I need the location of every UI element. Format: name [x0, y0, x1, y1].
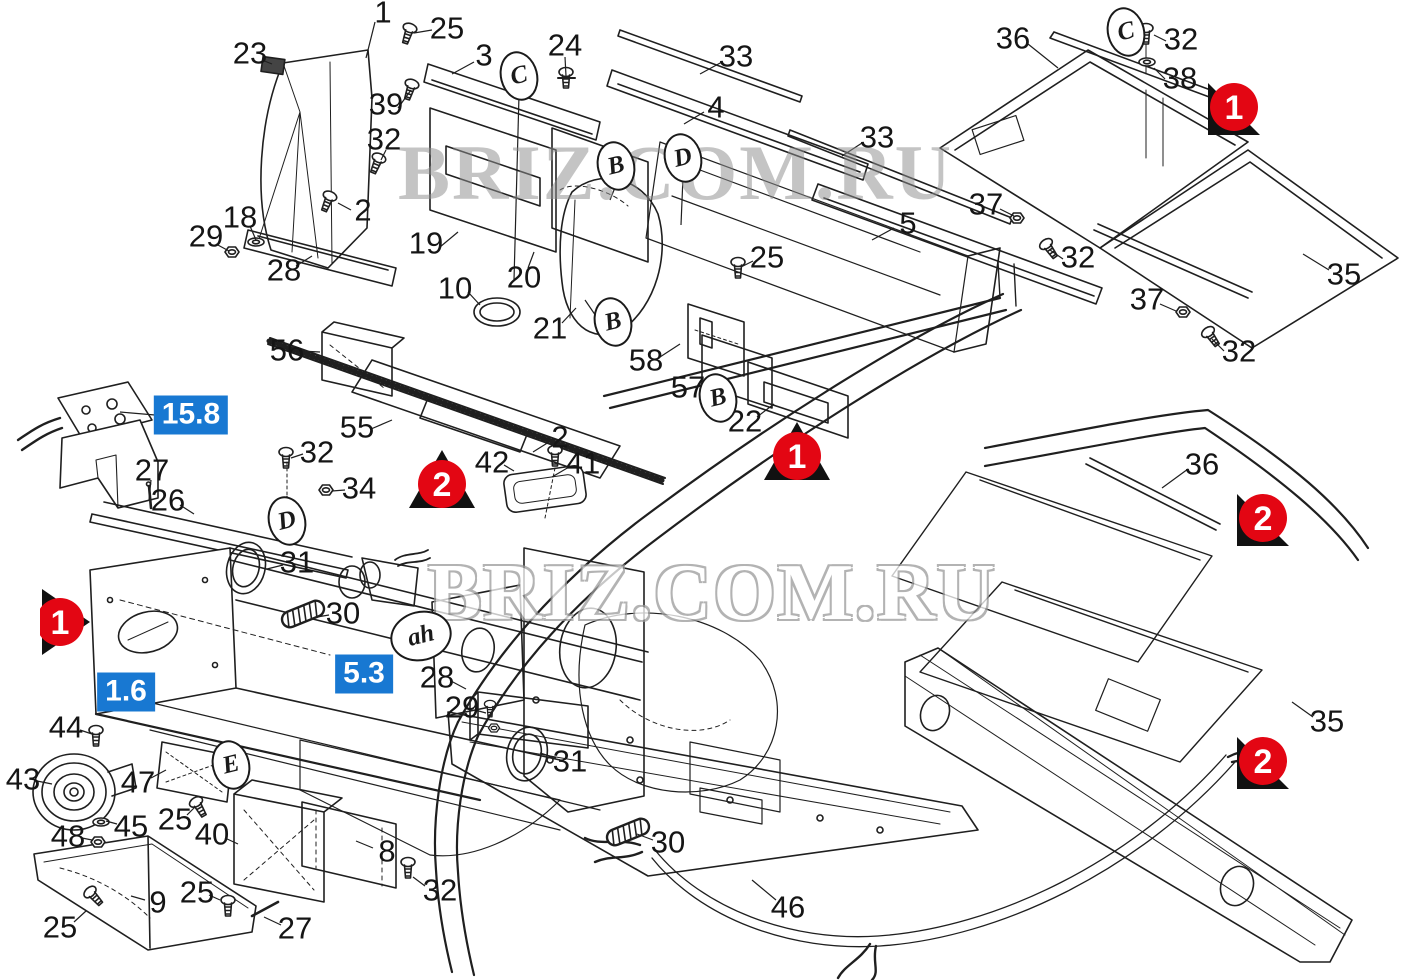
part-number-callout: 31	[280, 547, 314, 578]
section-letter-badge: E	[207, 736, 256, 794]
part-number-callout: 5	[899, 208, 916, 239]
part-number-callout: 10	[438, 273, 472, 304]
part-number-callout: 28	[420, 662, 454, 693]
part-number-callout: 32	[1222, 336, 1256, 367]
part-number-callout: 4	[707, 92, 724, 123]
marker-number: 2	[433, 466, 452, 504]
group-reference-label: 1.6	[97, 673, 155, 712]
part-number-callout: 27	[135, 455, 169, 486]
part-number-callout: 9	[149, 887, 166, 918]
marker-number: 1	[51, 604, 70, 642]
part-number-callout: 39	[369, 89, 403, 120]
marker-number: 2	[1254, 500, 1273, 538]
part-number-callout: 1	[374, 0, 391, 28]
annotation-overlay: 1252332439322182928191020213343352537363…	[0, 0, 1415, 980]
part-number-callout: 37	[1130, 284, 1164, 315]
section-letter-badge: C	[1102, 3, 1151, 61]
part-number-callout: 45	[114, 811, 148, 842]
assembly-step-marker: 1	[762, 420, 832, 482]
group-reference-label: 5.3	[335, 655, 393, 694]
part-number-callout: 35	[1327, 259, 1361, 290]
group-reference-label: 15.8	[154, 396, 228, 435]
part-number-callout: 56	[270, 335, 304, 366]
part-number-callout: 28	[267, 255, 301, 286]
part-number-callout: 42	[475, 447, 509, 478]
section-letter-badge: B	[592, 137, 641, 195]
part-number-callout: 58	[629, 345, 663, 376]
part-number-callout: 46	[771, 892, 805, 923]
assembly-step-marker: 1	[1206, 83, 1260, 137]
part-number-callout: 33	[860, 122, 894, 153]
part-number-callout: 29	[445, 692, 479, 723]
section-letter-badge: ah	[385, 604, 457, 668]
assembly-step-marker: 2	[1235, 494, 1289, 548]
part-number-callout: 24	[548, 30, 582, 61]
part-number-callout: 32	[300, 437, 334, 468]
part-number-callout: 37	[969, 189, 1003, 220]
marker-number: 1	[788, 438, 807, 476]
marker-number: 2	[1254, 743, 1273, 781]
assembly-step-marker: 1	[40, 587, 92, 657]
marker-number: 1	[1225, 89, 1244, 127]
part-number-callout: 30	[326, 598, 360, 629]
assembly-step-marker: 2	[1235, 737, 1289, 791]
part-number-callout: 44	[49, 712, 83, 743]
part-number-callout: 25	[180, 877, 214, 908]
assembly-step-marker: 2	[407, 448, 477, 510]
part-number-callout: 48	[51, 821, 85, 852]
part-number-callout: 25	[43, 912, 77, 943]
part-number-callout: 8	[378, 836, 395, 867]
part-number-callout: 35	[1310, 706, 1344, 737]
part-number-callout: 32	[1164, 24, 1198, 55]
part-number-callout: 29	[189, 221, 223, 252]
part-number-callout: 2	[354, 195, 371, 226]
part-number-callout: 36	[1185, 449, 1219, 480]
part-number-callout: 32	[1061, 242, 1095, 273]
part-number-callout: 41	[566, 448, 600, 479]
section-letter-badge: D	[263, 492, 312, 550]
part-number-callout: 18	[223, 202, 257, 233]
part-number-callout: 30	[651, 827, 685, 858]
section-letter-badge: D	[659, 129, 708, 187]
part-number-callout: 27	[278, 913, 312, 944]
part-number-callout: 34	[342, 473, 376, 504]
part-number-callout: 47	[121, 767, 155, 798]
section-letter-badge: C	[495, 47, 544, 105]
part-number-callout: 32	[367, 124, 401, 155]
part-number-callout: 36	[996, 23, 1030, 54]
part-number-callout: 32	[423, 875, 457, 906]
part-number-callout: 43	[6, 764, 40, 795]
part-number-callout: 20	[507, 262, 541, 293]
part-number-callout: 25	[158, 804, 192, 835]
part-number-callout: 31	[553, 746, 587, 777]
part-number-callout: 25	[750, 242, 784, 273]
part-number-callout: 3	[475, 40, 492, 71]
part-number-callout: 23	[233, 38, 267, 69]
part-number-callout: 33	[719, 41, 753, 72]
part-number-callout: 21	[533, 313, 567, 344]
part-number-callout: 55	[340, 412, 374, 443]
part-number-callout: 26	[151, 485, 185, 516]
part-number-callout: 25	[430, 13, 464, 44]
part-number-callout: 38	[1163, 63, 1197, 94]
part-number-callout: 19	[409, 228, 443, 259]
part-number-callout: 40	[195, 819, 229, 850]
exploded-parts-diagram: BRIZ.COM.RU BRIZ.COM.RU 1252332439322182…	[0, 0, 1415, 980]
